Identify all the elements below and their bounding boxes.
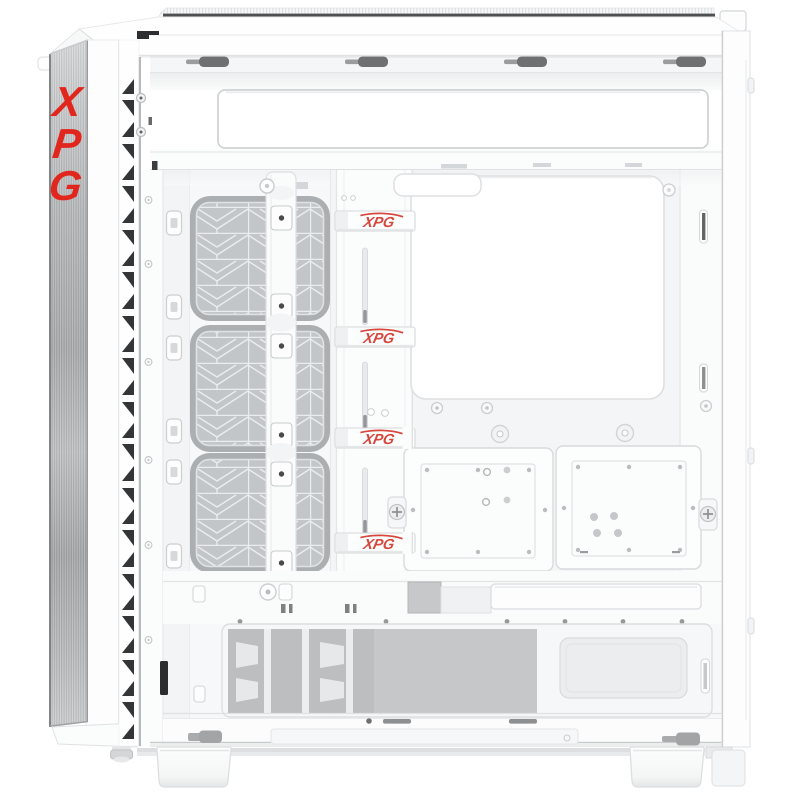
svg-text:XPG: XPG xyxy=(361,331,396,347)
svg-text:XPG: XPG xyxy=(361,432,396,448)
svg-text:G: G xyxy=(47,162,85,209)
svg-text:XPG: XPG xyxy=(361,215,396,231)
svg-text:XPG: XPG xyxy=(361,537,396,553)
